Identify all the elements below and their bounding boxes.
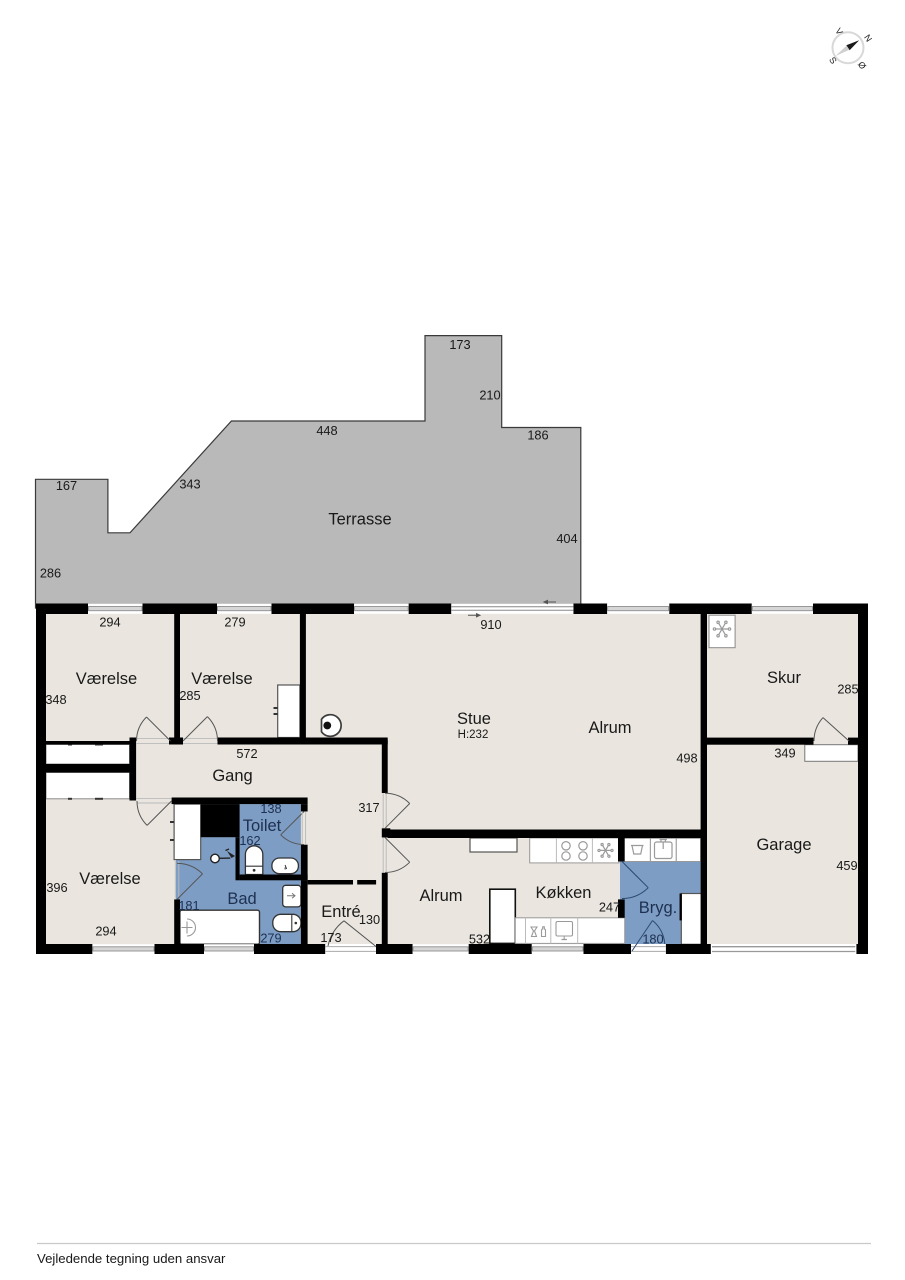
svg-text:Stue: Stue (457, 710, 491, 728)
svg-text:162: 162 (239, 833, 260, 848)
svg-text:532: 532 (469, 932, 490, 947)
svg-text:279: 279 (224, 615, 245, 630)
svg-text:448: 448 (316, 423, 337, 438)
svg-text:130: 130 (359, 912, 380, 927)
svg-text:173: 173 (449, 337, 470, 352)
svg-text:186: 186 (527, 428, 548, 443)
svg-text:Bad: Bad (227, 890, 256, 908)
svg-text:572: 572 (236, 746, 257, 761)
svg-text:H:232: H:232 (458, 729, 489, 741)
svg-text:Værelse: Værelse (191, 670, 252, 688)
svg-text:Alrum: Alrum (419, 887, 462, 905)
svg-text:181: 181 (178, 898, 199, 913)
svg-text:286: 286 (40, 566, 61, 581)
svg-text:Gang: Gang (212, 767, 252, 785)
svg-text:167: 167 (56, 478, 77, 493)
svg-text:Skur: Skur (767, 669, 801, 687)
svg-text:Bryg.: Bryg. (639, 899, 678, 917)
svg-text:Værelse: Værelse (79, 870, 140, 888)
svg-text:247: 247 (599, 900, 620, 915)
svg-text:396: 396 (46, 880, 67, 895)
svg-text:343: 343 (179, 477, 200, 492)
svg-text:498: 498 (676, 751, 697, 766)
svg-text:Alrum: Alrum (588, 719, 631, 737)
svg-text:294: 294 (95, 924, 116, 939)
svg-text:180: 180 (642, 932, 663, 947)
svg-text:317: 317 (358, 800, 379, 815)
svg-text:Garage: Garage (756, 836, 811, 854)
svg-text:349: 349 (774, 746, 795, 761)
svg-text:404: 404 (556, 531, 577, 546)
svg-text:459: 459 (836, 858, 857, 873)
svg-text:Køkken: Køkken (536, 884, 592, 902)
svg-text:294: 294 (99, 615, 120, 630)
svg-text:Entré: Entré (321, 903, 360, 921)
svg-text:210: 210 (479, 388, 500, 403)
svg-text:285: 285 (179, 688, 200, 703)
svg-text:910: 910 (480, 617, 501, 632)
svg-text:173: 173 (320, 930, 341, 945)
svg-text:Værelse: Værelse (76, 670, 137, 688)
svg-text:Terrasse: Terrasse (328, 511, 391, 529)
svg-text:138: 138 (260, 801, 281, 816)
svg-text:Vejledende tegning uden ansvar: Vejledende tegning uden ansvar (37, 1251, 226, 1266)
svg-text:279: 279 (260, 931, 281, 946)
svg-text:285: 285 (837, 682, 858, 697)
svg-text:348: 348 (45, 692, 66, 707)
